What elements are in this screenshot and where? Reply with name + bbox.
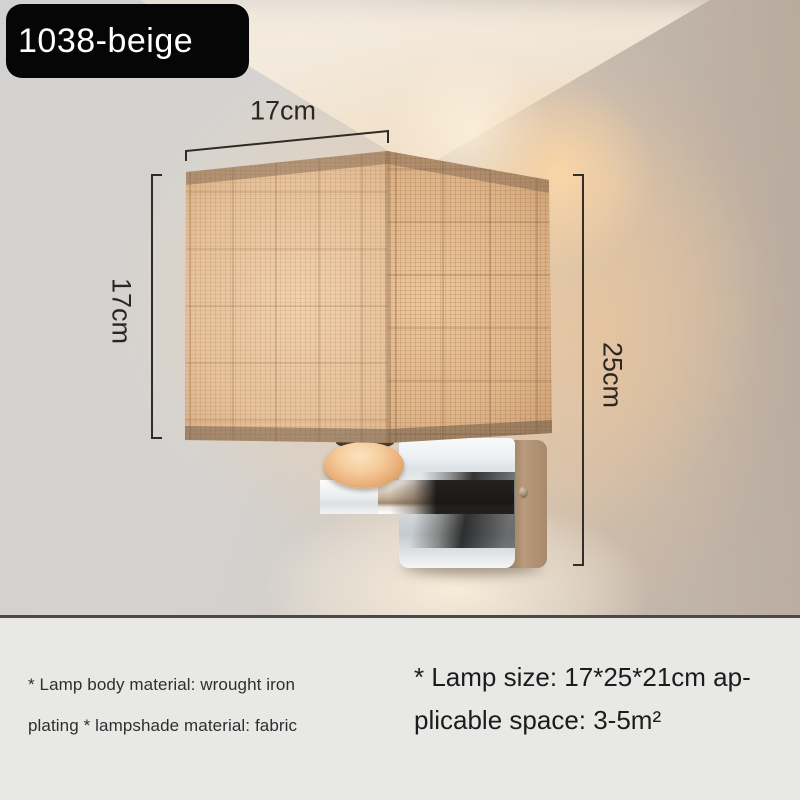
total-height-dimension-label: 25cm (597, 342, 628, 408)
variant-badge: 1038-beige (6, 4, 249, 78)
shade-height-dimension-label: 17cm (106, 278, 137, 344)
total-height-dimension-line (573, 175, 583, 565)
material-spec-line1: * Lamp body material: wrought iron (28, 664, 297, 705)
variant-badge-label: 1038-beige (18, 22, 193, 61)
size-spec-text: * Lamp size: 17*25*21cm ap- plicable spa… (414, 656, 751, 742)
width-dimension-line (186, 131, 388, 161)
product-image: 17cm 17cm 25cm 1038-beige * Lamp body ma… (0, 0, 800, 800)
width-dimension-label: 17cm (250, 96, 316, 127)
separator-line (0, 615, 800, 618)
material-spec-text: * Lamp body material: wrought iron plati… (28, 664, 297, 746)
lamp-photo: 17cm 17cm 25cm 1038-beige (0, 0, 800, 615)
material-spec-line2: plating * lampshade material: fabric (28, 705, 297, 746)
size-spec-line1: * Lamp size: 17*25*21cm ap- (414, 656, 751, 699)
shade-height-dimension-line (152, 175, 162, 438)
size-spec-line2: plicable space: 3-5m² (414, 699, 751, 742)
spec-panel: * Lamp body material: wrought iron plati… (0, 618, 800, 800)
